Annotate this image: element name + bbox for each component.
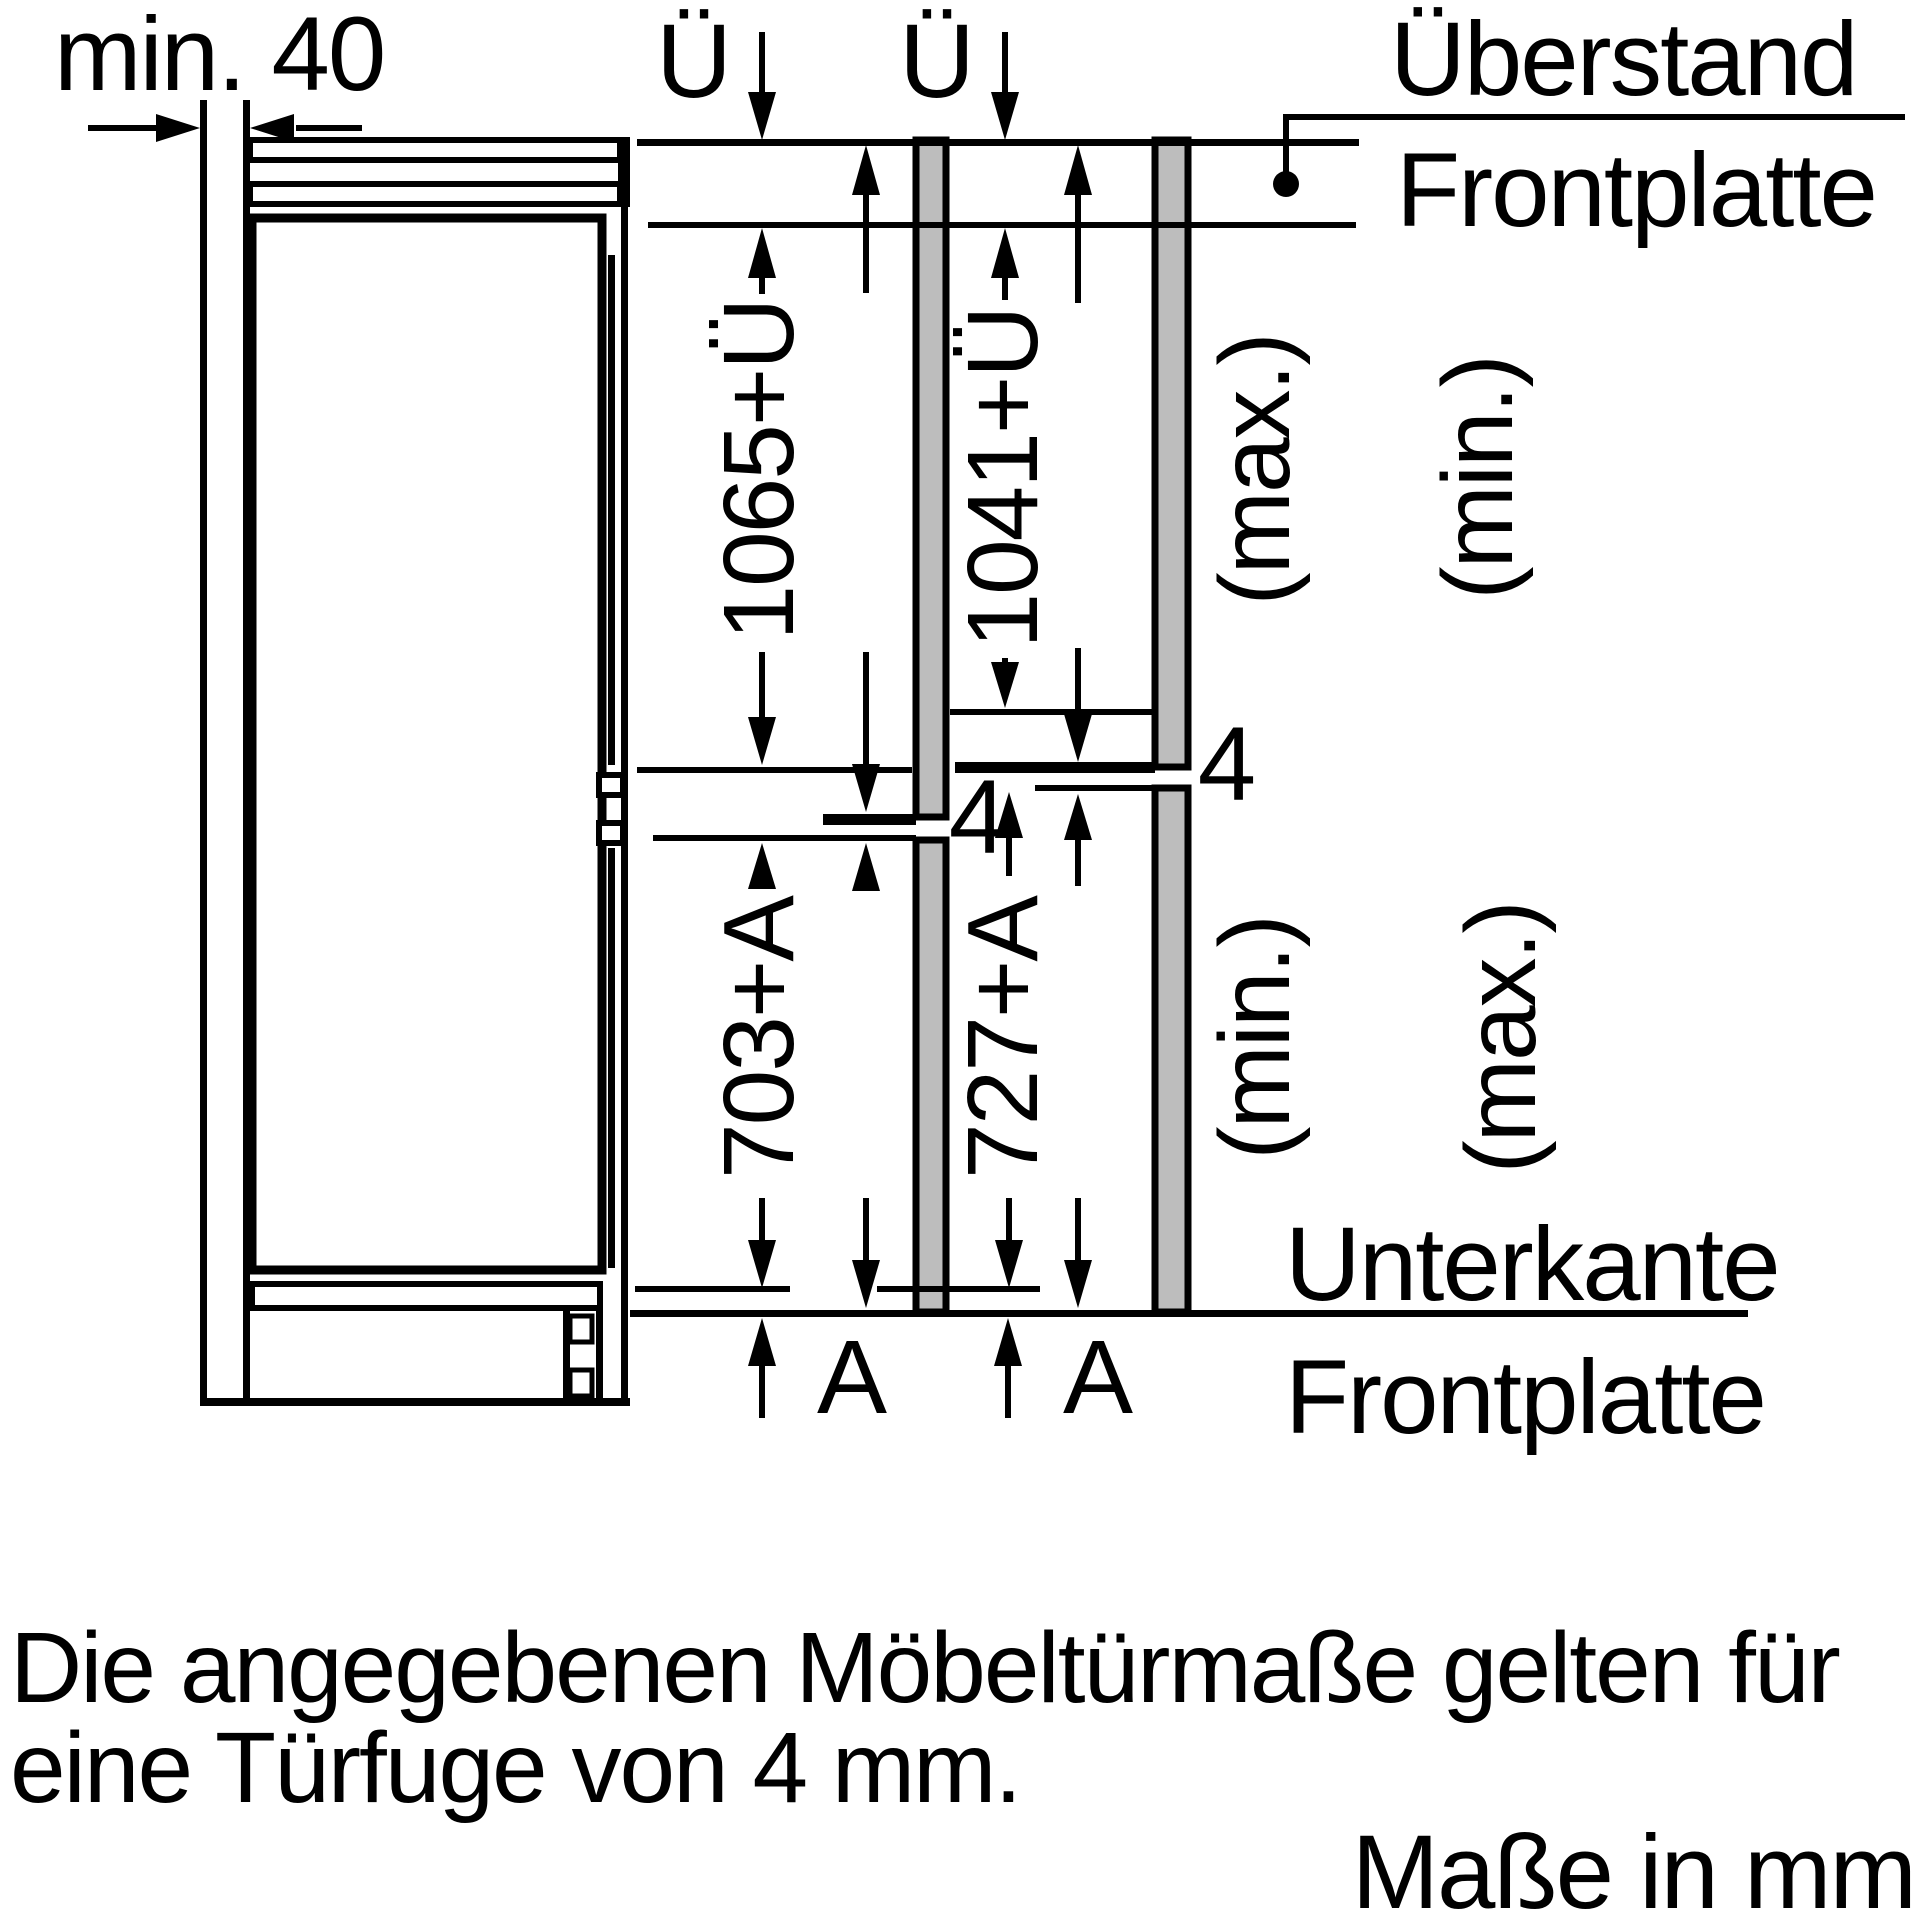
door-gap-label-left: 4 [949, 759, 1005, 876]
ll-qualifier: (min.) [1199, 916, 1311, 1160]
ul-inner-down-head [748, 717, 776, 765]
niche-gap-arrow-left-head [156, 114, 200, 142]
right-panel-lower [1155, 788, 1188, 1312]
ur-outer-down-head [1064, 714, 1092, 762]
appliance-outline [252, 218, 602, 1270]
bottom-edge-line2: Frontplatte [1285, 1339, 1765, 1456]
door-gap-label-right: 4 [1198, 706, 1254, 823]
overhang-arrow-left-head [748, 92, 776, 140]
right-panel-upper [1155, 140, 1188, 767]
ll-inner-down-shaft [759, 1198, 765, 1244]
ur-qualifier: (min.) [1422, 356, 1534, 600]
left-lower-panel-top-line [653, 835, 916, 841]
ur-inner-down-head [991, 662, 1019, 708]
ll-outer-up-head [852, 843, 880, 891]
overhang-dimension: Ü Ü [656, 3, 1019, 140]
foot-block-1 [570, 1316, 592, 1342]
ul-outer-up-shaft [863, 193, 869, 293]
ul-inner-up-head [748, 228, 776, 278]
lr-inner-down-shaft [1006, 1198, 1012, 1244]
ur-value: 1041+Ü [947, 307, 1059, 648]
appliance-door-edge-lower [608, 848, 615, 1268]
overhang-symbol-right: Ü [899, 3, 973, 120]
ll-value: 703+A [703, 895, 815, 1179]
left-panel-lower [916, 840, 946, 1312]
ul-inner-up-shaft [759, 276, 765, 294]
overhang-arrow-right-head [991, 92, 1019, 140]
top-edge-line [637, 139, 1359, 146]
ll-inner-down-head [748, 1240, 776, 1288]
left-panel-bottom-line [823, 814, 916, 825]
door-gap-note-line2: eine Türfuge von 4 mm. [10, 1712, 1020, 1824]
cabinet-front-edge-line [621, 207, 628, 1403]
ul-qualifier: (max.) [1199, 334, 1311, 605]
right-door-split-line [950, 709, 1155, 715]
lr-outer-down-head [1064, 1260, 1092, 1308]
top-vent-grille-bar-1 [250, 140, 620, 160]
ul-outer-up-head [852, 145, 880, 195]
niche-gap-arrow-left-shaft [88, 125, 158, 131]
below-dimension: A A [748, 1318, 1133, 1436]
below-symbol-right: A [1063, 1319, 1133, 1436]
foot-block-2 [570, 1370, 592, 1396]
overhang-arrow-right-shaft [1002, 32, 1008, 94]
ur-inner-up-head [991, 228, 1019, 278]
overhang-arrow-left-shaft [759, 32, 765, 94]
niche-gap-arrow-right-shaft [296, 125, 362, 131]
door-split-tab-2 [599, 823, 623, 843]
notes: Die angegebenen Möbeltürmaße gelten für … [10, 1612, 1915, 1924]
grille-front-cap [618, 137, 630, 207]
fridge-installation-diagram: min. 40 Ü Ü Überstand Frontplatte 1065+Ü… [0, 0, 1924, 1924]
a-arrow-right-head [994, 1318, 1022, 1366]
foot-line-right [596, 1308, 603, 1400]
lr-inner-up-shaft [1006, 836, 1012, 876]
ll-inner-up-head [748, 843, 776, 889]
niche-top-line [648, 222, 1356, 228]
niche-gap-dimension: min. 40 [54, 0, 384, 142]
ul-value: 1065+Ü [703, 299, 815, 640]
bottom-edge-line1: Unterkante [1285, 1206, 1779, 1323]
overhang-callout-line1: Überstand [1390, 1, 1856, 118]
appliance-door-edge-upper [608, 255, 615, 765]
door-gap-note-line1: Die angegebenen Möbeltürmaße gelten für [10, 1612, 1839, 1724]
overhang-symbol-left: Ü [656, 3, 730, 120]
plinth-vent-bar [252, 1284, 600, 1308]
ul-outer-down-shaft [863, 652, 869, 766]
lr-outer-up-head [1064, 794, 1092, 840]
overhang-callout-line2: Frontplatte [1396, 132, 1876, 249]
lr-outer-down-shaft [1075, 1198, 1081, 1262]
cabinet-outer-wall-line [200, 100, 207, 1406]
niche-gap-label: min. 40 [54, 0, 384, 113]
ul-outer-down-head [852, 764, 880, 812]
lr-outer-up-shaft [1075, 838, 1081, 886]
callout-leader-vertical [1283, 114, 1289, 174]
ur-outer-up-head [1064, 145, 1092, 195]
top-vent-grille-bar-2 [250, 184, 620, 204]
door-split-tab-1 [599, 775, 623, 795]
below-symbol-left: A [817, 1319, 887, 1436]
units-note: Maße in mm [1352, 1814, 1915, 1924]
a-arrow-left-head [748, 1318, 776, 1366]
left-panel-upper [916, 140, 946, 817]
a-arrow-right-shaft [1005, 1360, 1011, 1418]
ul-inner-down-shaft [759, 652, 765, 717]
niche-bottom-line-left [635, 1286, 790, 1292]
ur-outer-up-shaft [1075, 193, 1081, 303]
ur-inner-up-shaft [1002, 276, 1008, 300]
callout-dot [1273, 171, 1299, 197]
overhang-callout: Überstand Frontplatte [1273, 1, 1905, 249]
bottom-edge-callout: Unterkante Frontplatte [1285, 1206, 1779, 1456]
a-arrow-left-shaft [759, 1360, 765, 1418]
right-lower-panel-top-line [1035, 785, 1155, 791]
installation-diagram-page: min. 40 Ü Ü Überstand Frontplatte 1065+Ü… [0, 0, 1924, 1924]
lr-value: 727+A [947, 895, 1059, 1179]
appliance-body [252, 218, 623, 1400]
niche-bottom-line-right [877, 1286, 1040, 1292]
ll-outer-down-shaft [863, 1198, 869, 1262]
lr-qualifier: (max.) [1445, 902, 1557, 1173]
lr-inner-down-head [995, 1240, 1023, 1288]
ur-outer-down-shaft [1075, 648, 1081, 718]
ll-outer-down-head [852, 1260, 880, 1308]
